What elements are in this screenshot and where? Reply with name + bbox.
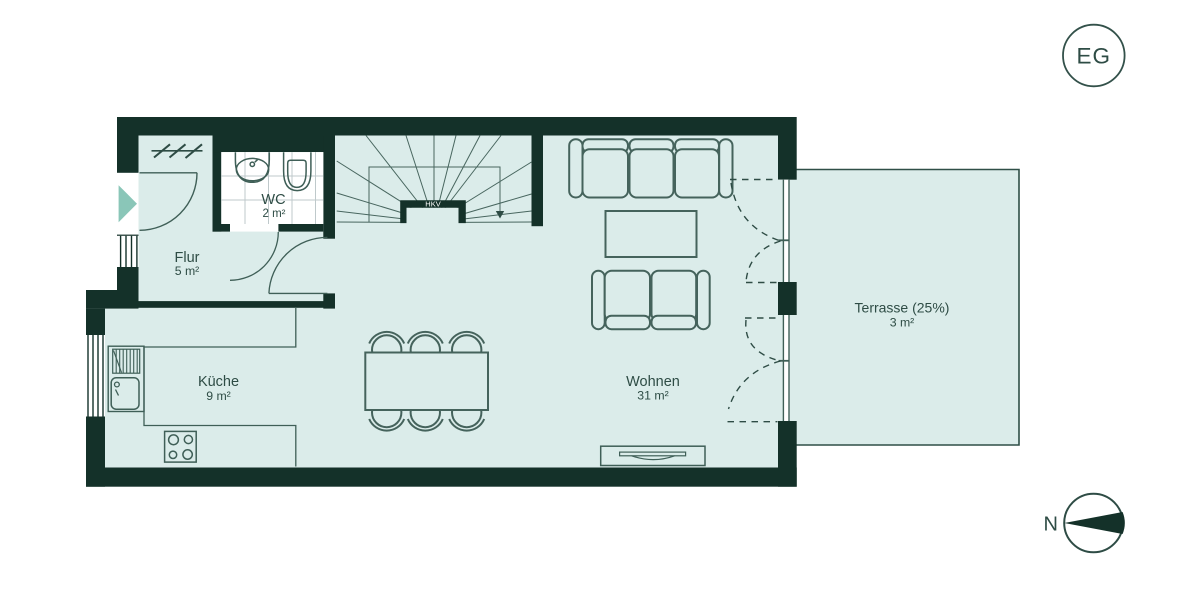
svg-text:WC: WC [261,192,285,208]
svg-text:HKV: HKV [425,200,440,209]
svg-text:N: N [1043,514,1057,536]
svg-text:2 m²: 2 m² [263,208,286,220]
svg-text:Küche: Küche [198,374,239,390]
svg-text:31 m²: 31 m² [637,389,668,403]
svg-text:9 m²: 9 m² [206,389,231,403]
svg-text:3 m²: 3 m² [890,316,915,330]
svg-text:EG: EG [1077,44,1112,69]
svg-text:5 m²: 5 m² [175,264,200,278]
svg-text:Terrasse (25%): Terrasse (25%) [855,300,950,316]
